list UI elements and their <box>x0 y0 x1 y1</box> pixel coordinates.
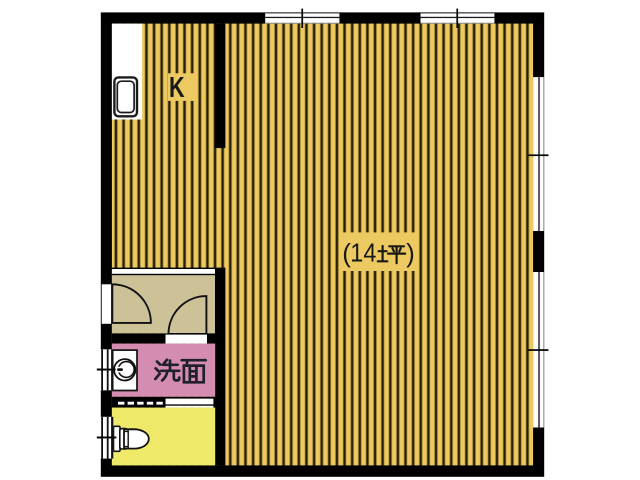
svg-text:): ) <box>406 238 415 268</box>
svg-text:14: 14 <box>350 240 376 268</box>
svg-text:K: K <box>169 72 185 104</box>
